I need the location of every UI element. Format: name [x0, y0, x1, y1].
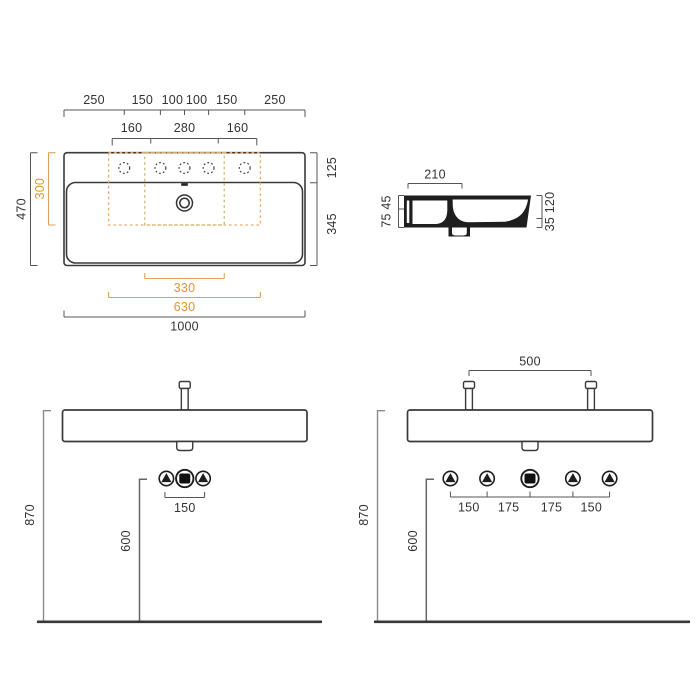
- dim-600: 600: [119, 530, 133, 551]
- dim-45: 45: [380, 195, 394, 209]
- drain-connection-icon: [521, 470, 538, 487]
- dim-75: 75: [380, 213, 394, 227]
- faucet-icon: [586, 382, 597, 411]
- dim-600: 600: [406, 530, 420, 551]
- side-section-view: 210 75 45 35 120: [380, 168, 558, 237]
- technical-drawing-page: 250 150 100 100 150 250 160 280 160: [0, 0, 700, 700]
- plan-template-width-inner-dimension: 330: [145, 273, 225, 295]
- drain-height-guide-line: [426, 479, 434, 622]
- water-connection-icon: [159, 471, 173, 485]
- dim-150: 150: [174, 501, 195, 515]
- dim-35-120: 35 120: [543, 192, 557, 231]
- dim-470: 470: [15, 198, 29, 219]
- connection-spacing-dimension-chain: 150 175 175 150: [450, 492, 609, 515]
- dim-150-left: 150: [458, 501, 479, 515]
- side-right-height-dimension: 35 120: [537, 192, 558, 231]
- dim-175-left: 175: [498, 501, 519, 515]
- dim-280: 280: [174, 121, 195, 135]
- dim-345: 345: [325, 213, 339, 234]
- side-ledge-width-dimension: 210: [408, 168, 462, 189]
- water-connection-icon: [566, 471, 580, 485]
- dim-35: 35: [543, 217, 557, 231]
- drain-connection-icon: [176, 470, 193, 487]
- basin-front-outline: [408, 410, 653, 442]
- drain-trap-icon: [522, 442, 538, 451]
- plan-view: 250 150 100 100 150 250 160 280 160: [15, 93, 340, 334]
- dim-100-left: 100: [162, 93, 183, 107]
- dim-160-left: 160: [121, 121, 142, 135]
- dim-330: 330: [174, 281, 195, 295]
- dim-120: 120: [543, 192, 557, 213]
- dim-100-right: 100: [186, 93, 207, 107]
- dim-500: 500: [519, 355, 540, 369]
- drain-trap-icon: [177, 442, 193, 451]
- front-view-single-tap: 870 150 600: [23, 382, 322, 622]
- basin-cross-section: [404, 196, 531, 237]
- drain-height-guide-line: [140, 479, 148, 622]
- plan-overall-depth-dimension: 470: [15, 153, 38, 266]
- dim-150-right: 150: [216, 93, 237, 107]
- basin-front-outline: [63, 410, 308, 442]
- connection-spacing-dimension: 150: [165, 492, 205, 515]
- tap-spacing-dimension: 500: [469, 355, 591, 377]
- plan-hole-spacing-dimension-chain: 250 150 100 100 150 250: [64, 93, 305, 117]
- plan-hole-group-dimension-chain: 160 280 160: [112, 121, 257, 146]
- water-connection-icon: [480, 471, 494, 485]
- drawing-canvas: 250 150 100 100 150 250 160 280 160: [0, 0, 700, 700]
- dim-630: 630: [174, 300, 195, 314]
- front-view-double-tap: 500 870 150 175 175 150 600: [357, 355, 690, 622]
- faucet-icon: [179, 382, 190, 411]
- dim-250-right: 250: [264, 93, 285, 107]
- plan-template-width-outer-dimension: 630: [109, 292, 261, 314]
- drain-outlet-icon: [177, 195, 193, 211]
- faucet-icon: [464, 382, 475, 411]
- dim-175-right: 175: [541, 501, 562, 515]
- rim-height-guide-line: [378, 410, 386, 622]
- water-connection-icon: [602, 471, 616, 485]
- dim-160-right: 160: [227, 121, 248, 135]
- dim-870: 870: [357, 504, 371, 525]
- dim-150-right: 150: [581, 501, 602, 515]
- water-connection-icon: [196, 471, 210, 485]
- overflow-slot-icon: [181, 183, 188, 186]
- water-connection-icon: [443, 471, 457, 485]
- dim-1000: 1000: [170, 320, 199, 334]
- dim-75-45: 75 45: [380, 195, 394, 227]
- dim-125: 125: [325, 157, 339, 178]
- side-left-height-dimension: 75 45: [380, 195, 405, 227]
- dim-250-left: 250: [83, 93, 104, 107]
- plan-template-depth-dimension: 300: [33, 153, 56, 225]
- plan-depth-dimension-chain: 125 345: [310, 153, 339, 266]
- rim-height-guide-line: [44, 410, 52, 622]
- dim-300: 300: [33, 178, 47, 199]
- dim-210: 210: [424, 168, 445, 182]
- dim-870: 870: [23, 504, 37, 525]
- dim-150-left: 150: [132, 93, 153, 107]
